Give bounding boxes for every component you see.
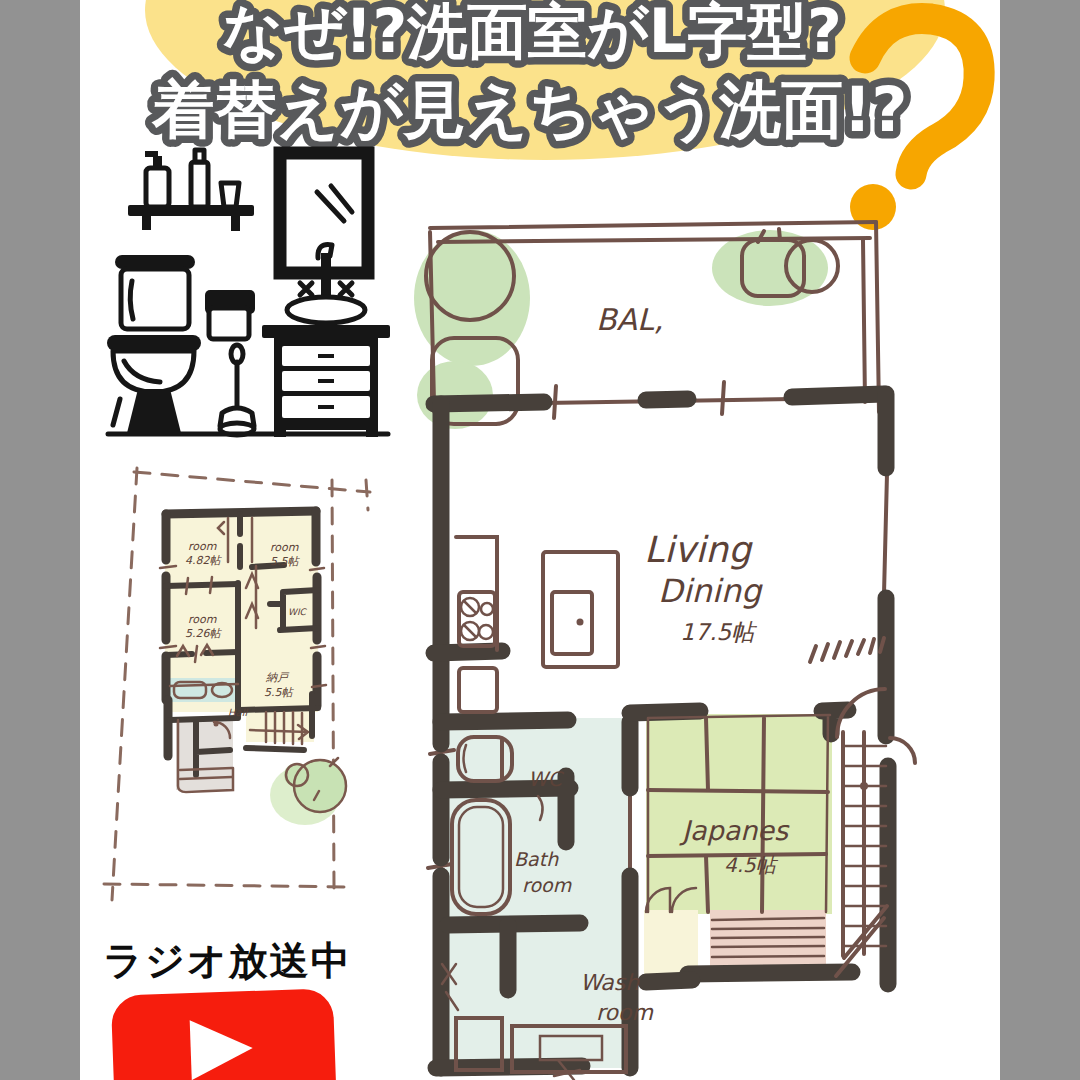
living-label-2: Dining — [658, 572, 763, 610]
pump-bottle-icon — [145, 151, 169, 207]
poster: なぜ!?洗面室がL字型? 着替えが見えちゃう洗面!? — [0, 0, 1080, 1080]
living-label-1: Living — [644, 529, 753, 570]
room-3-size: 5.26帖 — [185, 627, 222, 640]
tatami-area — [646, 714, 832, 914]
title-line-2: 着替えが見えちゃう洗面!? — [151, 73, 908, 146]
wic-label: WIC — [288, 607, 308, 617]
small-floor-plan: room 4.82帖 room 5.5帖 room 5.26帖 WIC 納戸 5… — [95, 445, 395, 955]
youtube-play-icon — [190, 1018, 254, 1080]
plunger-icon — [220, 345, 254, 435]
bath-label-1: Bath — [514, 848, 559, 870]
youtube-play-button[interactable] — [111, 988, 337, 1080]
bottle-icon — [191, 150, 208, 207]
bathroom-clipart — [100, 145, 420, 465]
bath-label-2: room — [522, 874, 572, 896]
small-garden-bush — [270, 758, 347, 825]
wash-label-1: Wash — [580, 970, 640, 995]
wc-label: WC — [528, 767, 565, 791]
kitchen — [456, 537, 618, 712]
basin-icon — [287, 297, 365, 323]
title-line-1: なぜ!?洗面室がL字型? — [222, 0, 841, 66]
nando-size: 5.5帖 — [264, 686, 294, 699]
kitchen-island — [543, 552, 618, 667]
hall-label: Hall — [228, 707, 248, 718]
room-2-size: 5.5帖 — [270, 555, 300, 568]
cup-icon — [221, 183, 239, 207]
right-border — [1000, 0, 1080, 1080]
japanese-label: Japanes — [679, 815, 790, 846]
toilet-icon — [107, 255, 201, 433]
room-1-size: 4.82帖 — [185, 554, 222, 567]
wash-label-2: room — [596, 1000, 653, 1025]
room-3-name: room — [188, 613, 217, 626]
japanese-size: 4.5帖 — [724, 853, 779, 877]
radio-broadcast-label: ラジオ放送中 — [103, 934, 352, 988]
toilet-paper-box-icon — [205, 290, 255, 339]
living-size: 17.5帖 — [680, 619, 757, 645]
balcony-label: BAL, — [596, 302, 663, 337]
room-2-name: room — [270, 541, 299, 554]
left-border — [0, 0, 80, 1080]
room-1-name: room — [188, 540, 217, 553]
nando-label: 納戸 — [265, 671, 290, 684]
main-floor-plan: BAL, Living Dining 17.5帖 WC Bath room Wa… — [410, 190, 1010, 1080]
vanity-icon — [262, 325, 390, 437]
